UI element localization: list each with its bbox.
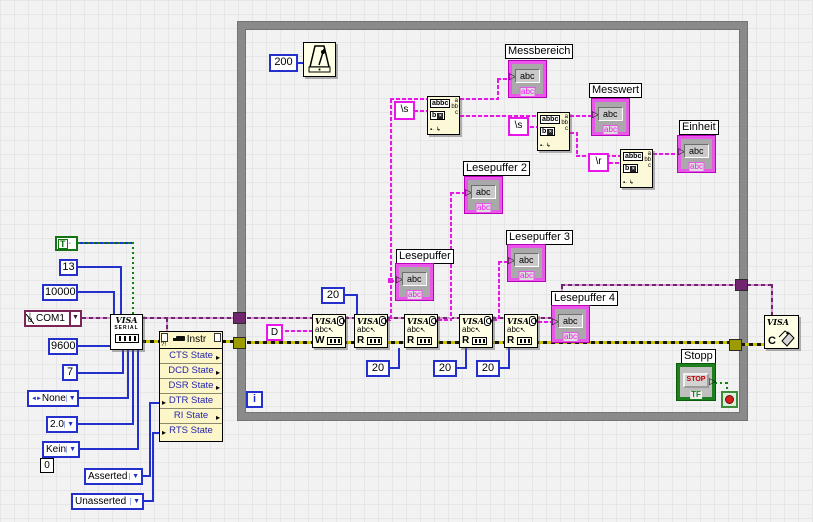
ring-glyph-icon: ◄► [31,396,41,402]
wire [79,397,129,399]
loop-iteration-terminal[interactable]: i [246,391,263,408]
property-row-cts[interactable]: CTS State▸ [160,349,222,364]
wire [398,348,400,368]
labview-block-diagram: { "left_panel": { "true_const": "T", "te… [0,0,813,522]
visa-property-node[interactable]: ?! Instr CTS State▸ DCD State▸ DSR State… [159,331,223,442]
wire [450,192,465,194]
byte-count-constant[interactable]: 20 [321,287,345,304]
wire [414,110,427,112]
stopbits-ring-constant[interactable]: 2.0 ▼ [46,416,78,433]
serial-label: SERIAL [111,325,142,331]
wait-until-next-ms-multiple-block[interactable] [303,42,336,77]
wire [653,153,678,155]
timeout-clock-icon [379,316,386,326]
property-row-dsr[interactable]: DSR State▸ [160,379,222,394]
wire [576,132,578,156]
wire [122,350,124,374]
timeout-clock-icon [529,316,536,326]
timeout-clock-icon [484,316,491,326]
error-tunnel [729,339,742,351]
error-tunnel [233,337,246,349]
wire [497,79,499,100]
read-arrow-icon: ▸ [216,411,220,425]
byte-count-constant[interactable]: 20 [433,360,457,377]
match-pattern-block[interactable]: abbc b× abbc ▪· ↳ [620,149,653,188]
visa-close-block[interactable]: VISA C [764,315,799,349]
visa-read-block[interactable]: VISA abc↖ R [504,314,538,348]
indicator-label: Lesepuffer 3 [506,230,573,245]
rts-value: Unasserted [75,496,126,507]
stop-button[interactable]: STOP [683,373,709,388]
wire [498,261,508,263]
dtr-value: Asserted [88,471,127,482]
wire [149,402,151,477]
wire [80,448,139,450]
wire [465,348,467,368]
messwert-indicator[interactable]: ▷ abc abc [592,99,629,135]
wire [497,78,509,80]
hook-arrow-icon: ↖ [328,327,334,334]
wire [82,317,110,319]
dropdown-arrow-icon[interactable]: ▼ [66,395,78,402]
hook-arrow-icon: ↖ [420,327,426,334]
regex-box-icon: × [630,166,636,172]
wire [127,350,129,399]
plug-icon [176,336,185,341]
match-pattern-block[interactable]: abbc b× abbc ▪· ↳ [537,112,570,151]
einheit-indicator[interactable]: ▷ abc abc [678,136,715,172]
metronome-icon [304,43,335,76]
visa-tunnel [735,279,748,291]
visa-tunnel [233,312,246,324]
property-row-rts[interactable]: ▸RTS State [160,424,222,439]
databits-constant[interactable]: 7 [62,364,78,381]
dropdown-arrow-icon[interactable]: ▼ [69,312,80,325]
wire [142,340,160,343]
wire [609,162,620,164]
boolean-glyph-icon: ▪ [69,241,71,247]
dip-switch-icon [115,334,139,343]
rts-ring-constant[interactable]: Unasserted ▼ [71,493,144,510]
serial-port-icon [517,337,532,345]
wire [390,99,392,320]
zero-constant[interactable]: 0 [40,458,54,473]
wire [166,318,168,332]
wire [570,115,592,117]
wire [78,266,122,268]
loop-condition-terminal[interactable] [721,391,738,408]
boolean-true-constant[interactable]: T ▪ [55,236,78,251]
page-icon [214,333,221,342]
visa-resource-constant[interactable]: IO COM1 ▼ [24,310,82,327]
dropdown-arrow-icon[interactable]: ▼ [66,446,78,453]
wire [143,317,234,319]
wire [460,98,498,100]
wire [152,432,154,502]
indicator-label: Lesepuffer 2 [463,161,530,176]
visa-write-block[interactable]: VISA abc↖ W [312,314,346,348]
baud-constant[interactable]: 9600 [48,338,78,355]
wait-ms-constant[interactable]: 200 [269,54,298,72]
stopbits-value: 2.0 [50,419,64,430]
indicator-label: Messwert [589,83,642,98]
flowcontrol-ring-constant[interactable]: Kein ▼ [42,441,80,458]
wire [137,350,139,450]
parity-ring-constant[interactable]: ◄► None ▼ [27,390,79,407]
stop-label: Stopp [681,349,716,364]
lesepuffer4-indicator[interactable]: ▷ abc abc [552,306,589,342]
hook-arrow-icon: ↖ [370,327,376,334]
wire [508,348,510,368]
wire [78,345,111,347]
lesepuffer3-indicator[interactable]: ▷ abc abc [508,245,545,281]
stop-button-terminal[interactable]: STOP ▷ TF [677,364,715,400]
regex-constant[interactable]: \r [588,153,609,172]
wire [120,266,122,315]
parity-value: None [42,393,66,404]
wire [78,242,134,244]
termchar-constant[interactable]: 13 [59,259,78,276]
read-arrow-icon: ▸ [216,351,220,365]
wire [356,294,358,315]
byte-count-constant[interactable]: 20 [366,360,390,377]
visa-configure-serial-port-block[interactable]: VISA SERIAL [110,314,143,350]
io-icon: IO [26,314,34,324]
property-node-title: Instr [187,334,206,345]
help-glyph: ?! [161,342,166,348]
wire [78,423,134,425]
hook-arrow-icon: ↖ [475,327,481,334]
visa-read-block[interactable]: VISA abc↖ R [404,314,438,348]
serial-port-icon [417,337,432,345]
byte-count-constant[interactable]: 20 [476,360,500,377]
wire [78,291,115,293]
serial-port-icon [327,337,342,345]
page-icon [161,333,168,342]
read-arrow-icon: ▸ [216,366,220,380]
write-command-constant[interactable]: D [266,324,283,341]
visa-label: VISA [111,315,142,325]
wire-junction [388,278,393,283]
indicator-label: Lesepuffer 4 [551,291,618,306]
write-arrow-icon: ▸ [162,426,166,440]
lesepuffer2-indicator[interactable]: ▷ abc abc [465,177,502,213]
match-pattern-block[interactable]: abbc b× abbc ▪· ↳ [427,96,460,135]
indicator-label: Messbereich [505,44,573,59]
property-node-header: ?! Instr [160,332,222,349]
flow-value: Kein [46,444,66,455]
wire [561,284,737,286]
wire [285,330,313,332]
property-row-ri[interactable]: RI State▸ [160,409,222,424]
dropdown-arrow-icon[interactable]: ▼ [130,498,142,505]
regex-box-icon: × [547,129,553,135]
output-arrow-icon: ▷ [709,376,716,387]
property-row-dtr[interactable]: ▸DTR State [160,394,222,409]
dropdown-arrow-icon[interactable]: ▼ [129,473,141,480]
wire [132,350,134,425]
dropdown-arrow-icon[interactable]: ▼ [64,421,76,428]
lesepuffer-indicator[interactable]: ▷ abc abc [396,264,433,300]
regex-box-icon: × [437,113,443,119]
boolean-type-label: TF [690,391,702,399]
timeout-clock-icon [429,316,436,326]
close-hand-icon [777,328,797,347]
hook-arrow-icon: ↖ [520,327,526,334]
regex-constant[interactable]: \s [508,117,529,136]
resource-name: COM1 [36,313,65,324]
wire [390,98,427,100]
timeout-clock-icon [337,316,344,326]
wire [132,242,134,315]
wire [78,372,124,374]
wire [538,321,552,323]
visa-read-block[interactable]: VISA abc↖ R [459,314,493,348]
visa-read-block[interactable]: VISA abc↖ R [354,314,388,348]
property-row-dcd[interactable]: DCD State▸ [160,364,222,379]
stop-sign-icon [725,395,734,404]
wire [747,284,773,286]
indicator-label: Lesepuffer [396,249,454,264]
serial-port-icon [367,337,382,345]
messbereich-indicator[interactable]: ▷ abc abc [509,61,546,97]
serial-port-icon [472,337,487,345]
wire [771,284,773,316]
write-arrow-icon: ▸ [162,396,166,410]
dtr-ring-constant[interactable]: Asserted ▼ [84,468,143,485]
wire [741,343,765,346]
timeout-constant[interactable]: 10000 [42,284,78,301]
true-constant-label: T [58,239,68,249]
regex-constant[interactable]: \s [394,101,415,120]
indicator-label: Einheit [679,120,719,135]
wire [113,291,115,315]
read-arrow-icon: ▸ [216,381,220,395]
wire [498,261,500,321]
